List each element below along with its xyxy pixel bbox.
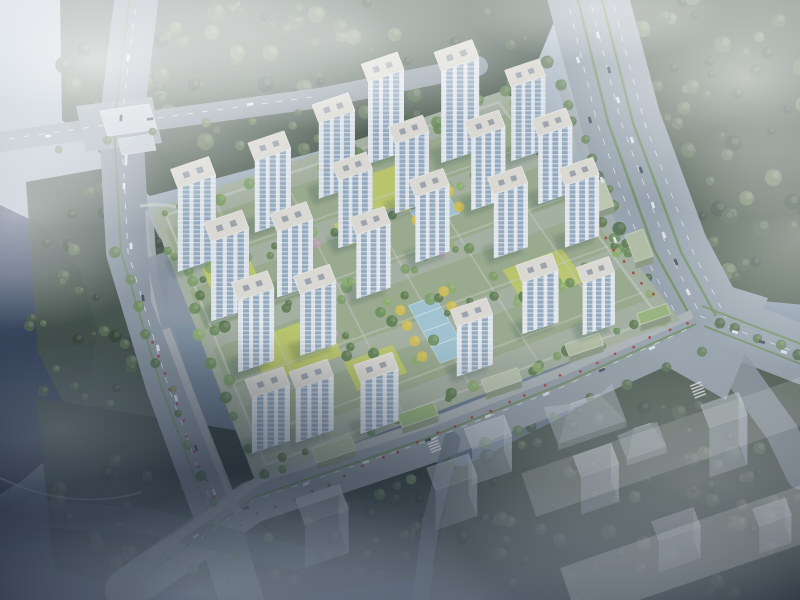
render-canvas [0, 0, 800, 600]
aerial-architectural-rendering [0, 0, 800, 600]
atmosphere [0, 0, 800, 600]
